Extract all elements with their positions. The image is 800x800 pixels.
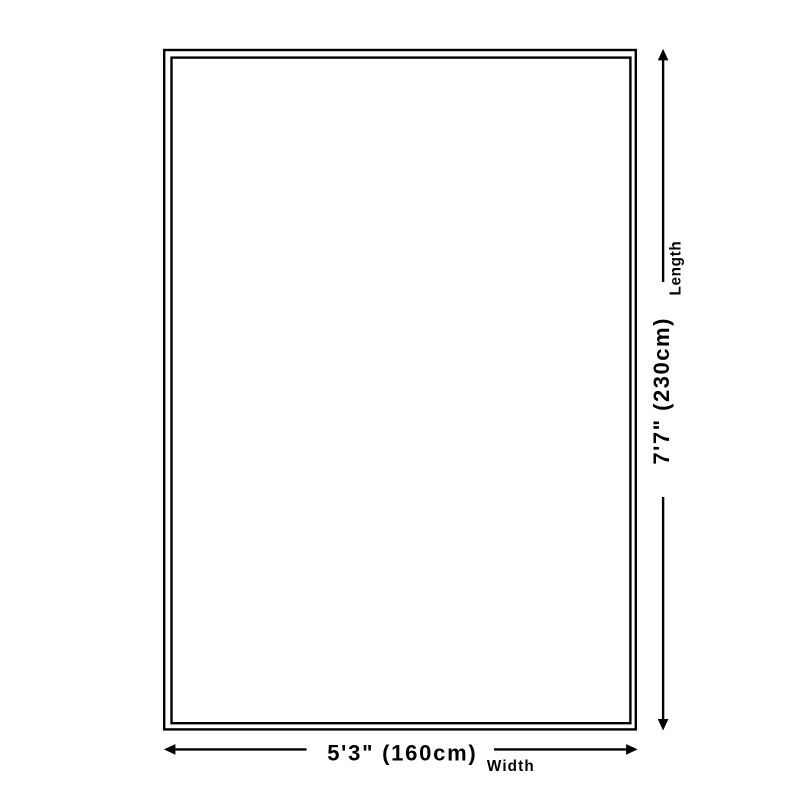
svg-text:5'3" (160cm): 5'3" (160cm) (327, 741, 476, 766)
svg-text:7'7" (230cm): 7'7" (230cm) (649, 319, 674, 465)
svg-text:Width: Width (487, 758, 534, 775)
svg-text:Length: Length (667, 241, 684, 295)
